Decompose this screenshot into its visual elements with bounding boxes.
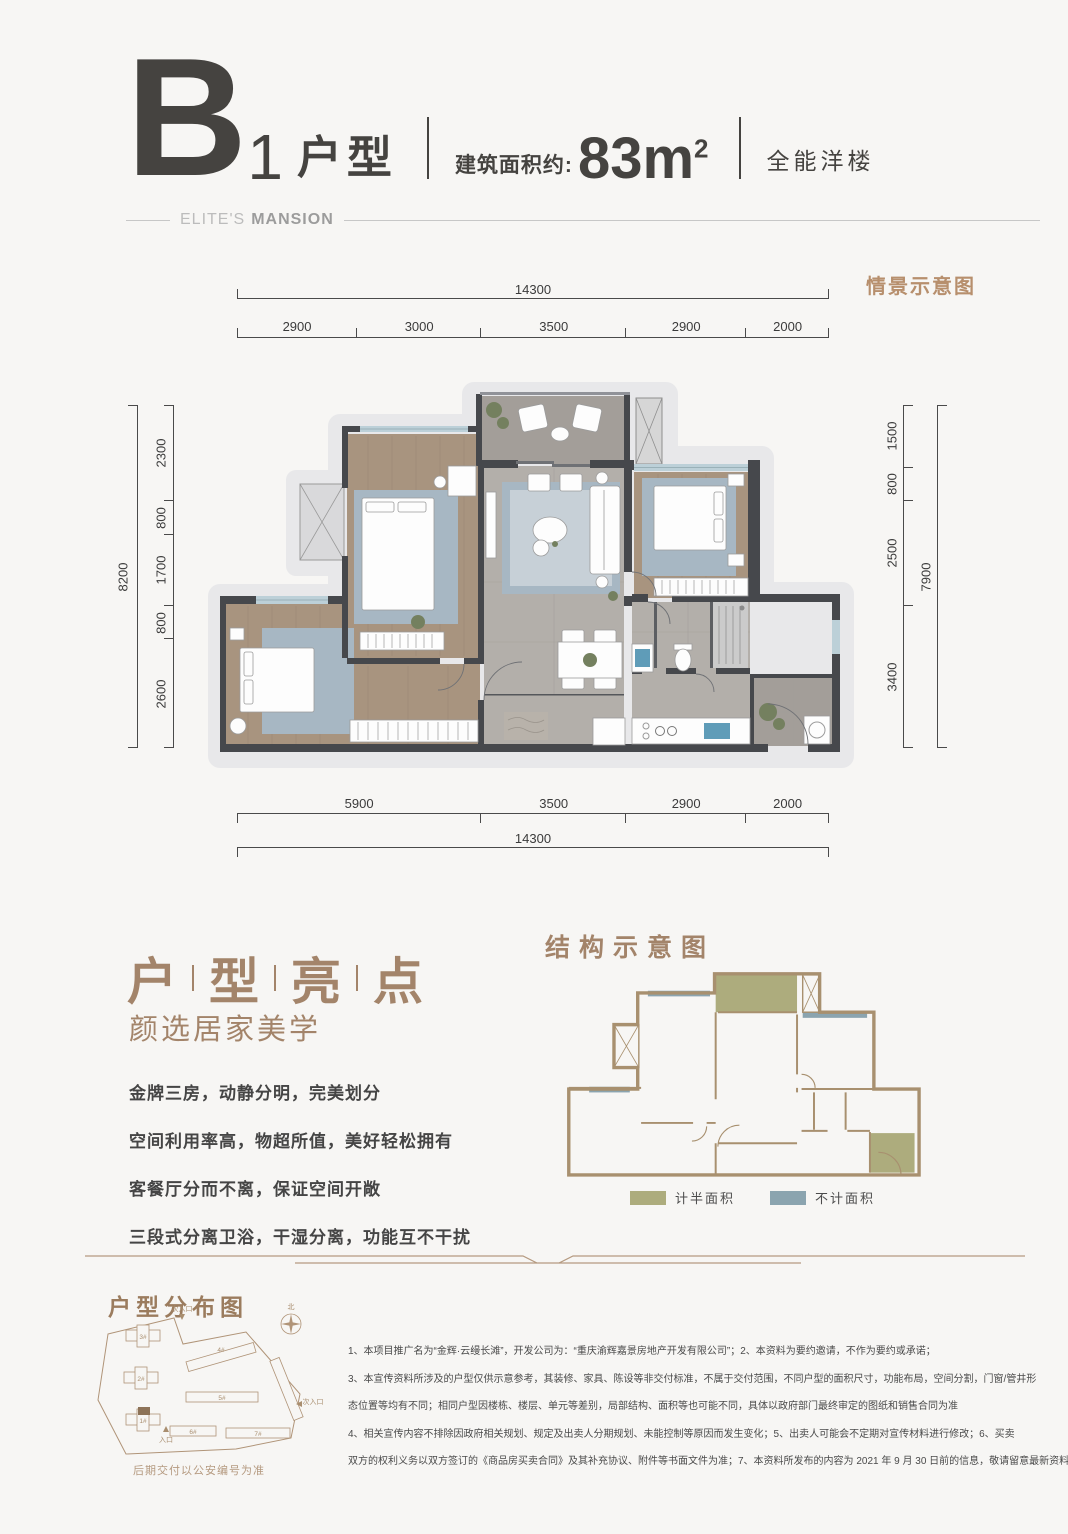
legend-half-area: 计半面积: [630, 1188, 735, 1207]
brand-row: ELITE'S MANSION: [126, 211, 1040, 229]
highlight-point: 客餐厅分而不离，保证空间开敞: [129, 1166, 471, 1214]
title-separator: [356, 965, 358, 991]
brand-line-right: [344, 220, 1040, 221]
title-separator: [274, 965, 276, 991]
building-label: 5#: [218, 1395, 226, 1402]
siteplan-caption: 后期交付以公安编号为准: [133, 1462, 265, 1478]
building-label: 4#: [217, 1347, 225, 1354]
disclaimer-line: 态位置等均有不同；相同户型因楼栋、楼层、单元等差别，局部结构、面积等也可能不同，…: [348, 1393, 1068, 1421]
area-superscript: 2: [694, 134, 708, 164]
entrance-main-arrow-icon: [163, 1426, 169, 1432]
building-label: 1#: [139, 1418, 147, 1425]
dim-bottom-total: 14300: [237, 847, 829, 858]
structure-diagram: [548, 962, 968, 1180]
no-count-area-swatch: [770, 1191, 806, 1205]
dim-value: 800: [904, 468, 914, 502]
building-label: 3#: [139, 1334, 147, 1341]
dim-value: 1500: [904, 405, 914, 468]
brand-name-light: ELITE'S: [180, 211, 245, 229]
dim-left-total: 8200: [127, 405, 138, 748]
dim-value: 2300: [163, 405, 173, 501]
divider-ornament: [85, 1252, 1025, 1268]
dim-value: 2500: [904, 501, 914, 606]
highlights-title-char: 户: [127, 942, 177, 1014]
dim-value: 3500: [481, 315, 626, 337]
disclaimer: 1、本项目推广名为“金辉·云缦长滩”，开发公司为：“重庆渝辉嘉景房地产开发有限公…: [348, 1338, 1068, 1476]
dim-right-total: 7900: [937, 405, 948, 748]
dim-value: 800: [163, 501, 173, 535]
no-count-area-label: 不计面积: [815, 1188, 875, 1207]
highlights-title-char: 型: [209, 942, 259, 1014]
area-label: 建筑面积约:: [455, 155, 573, 183]
highlight-point: 金牌三房，动静分明，完美划分: [129, 1070, 471, 1118]
brand-name-bold: MANSION: [251, 211, 334, 229]
legend-no-count-area: 不计面积: [770, 1188, 875, 1207]
dim-value: 2600: [163, 639, 173, 748]
scene-label: 情景示意图: [866, 270, 976, 299]
half-area-swatch: [630, 1191, 666, 1205]
svg-text:北: 北: [288, 1303, 295, 1311]
dim-value: 1700: [163, 535, 173, 606]
dim-right-segments: 1500 800 2500 3400: [903, 405, 914, 748]
dim-top-total: 14300: [237, 288, 829, 299]
building-label: 2#: [137, 1376, 145, 1383]
highlights-points: 金牌三房，动静分明，完美划分 空间利用率高，物超所值，美好轻松拥有 客餐厅分而不…: [129, 1070, 471, 1262]
highlights-title-char: 亮: [291, 942, 341, 1014]
building-label: 7#: [254, 1431, 262, 1438]
dim-value: 2900: [237, 315, 357, 337]
dim-value: 3500: [481, 814, 626, 826]
disclaimer-line: 3、本宣传资料所涉及的户型仅供示意参考，其装修、家具、陈设等非交付标准，不属于交…: [348, 1366, 1068, 1394]
dim-value: 800: [163, 606, 173, 640]
dim-value: 3000: [357, 315, 481, 337]
dim-bottom-segments: 5900 3500 2900 2000: [237, 813, 829, 826]
highlight-point: 空间利用率高，物超所值，美好轻松拥有: [129, 1118, 471, 1166]
half-area-label: 计半面积: [675, 1188, 735, 1207]
header-divider: [427, 117, 429, 179]
dim-left-segments: 2300 800 1700 800 2600: [163, 405, 174, 748]
dim-value: 2000: [746, 315, 829, 337]
entrance-secondary-arrow-icon: [179, 1314, 185, 1320]
header: B 1 户型 建筑面积约: 83m2 全能洋楼: [126, 52, 875, 183]
kitchen-fixtures: [632, 718, 750, 744]
siteplan-map: 北 次入口 次入口 入口 3# 2# 1# 4# 5# 6# 7#: [86, 1300, 336, 1470]
dim-value: 3400: [904, 606, 914, 748]
dim-value: 2900: [626, 814, 746, 826]
unit-suffix: 户型: [297, 135, 397, 183]
area-value: 83m2: [578, 135, 709, 183]
brand-line-left: [126, 220, 170, 221]
header-divider-2: [739, 117, 741, 179]
header-tagline: 全能洋楼: [767, 142, 875, 183]
compass-icon: 北: [281, 1303, 301, 1334]
title-separator: [192, 965, 194, 991]
highlights-title: 户 型 亮 点: [127, 942, 423, 1014]
highlights-subtitle: 颜选居家美学: [129, 1006, 321, 1048]
dim-value: 2900: [626, 315, 746, 337]
dim-value: 5900: [237, 814, 481, 826]
highlights-title-char: 点: [373, 942, 423, 1014]
disclaimer-line: 4、相关宣传内容不排除因政府相关规划、规定及出卖人分期规划、未能控制等原因而发生…: [348, 1421, 1068, 1449]
unit-number: 1: [247, 131, 283, 183]
entrance-main-label: 入口: [159, 1436, 173, 1444]
entrance-secondary-label-2: 次入口: [303, 1397, 324, 1406]
highlighted-building: [138, 1407, 150, 1415]
dim-top-segments: 2900 3000 3500 2900 2000: [237, 315, 829, 338]
structure-title: 结构示意图: [545, 928, 715, 964]
entrance-secondary-label: 次入口: [172, 1304, 193, 1313]
unit-letter: B: [126, 52, 244, 183]
dim-value: 2000: [746, 814, 829, 826]
disclaimer-line: 1、本项目推广名为“金辉·云缦长滩”，开发公司为：“重庆渝辉嘉景房地产开发有限公…: [348, 1338, 1068, 1366]
building-label: 6#: [189, 1429, 197, 1436]
disclaimer-line: 双方的权利义务以双方签订的《商品房买卖合同》及其补充协议、附件等书面文件为准；7…: [348, 1448, 1068, 1476]
poster-page: B 1 户型 建筑面积约: 83m2 全能洋楼 ELITE'S MANSION …: [0, 0, 1068, 1534]
floorplan-rendering: [208, 382, 868, 782]
